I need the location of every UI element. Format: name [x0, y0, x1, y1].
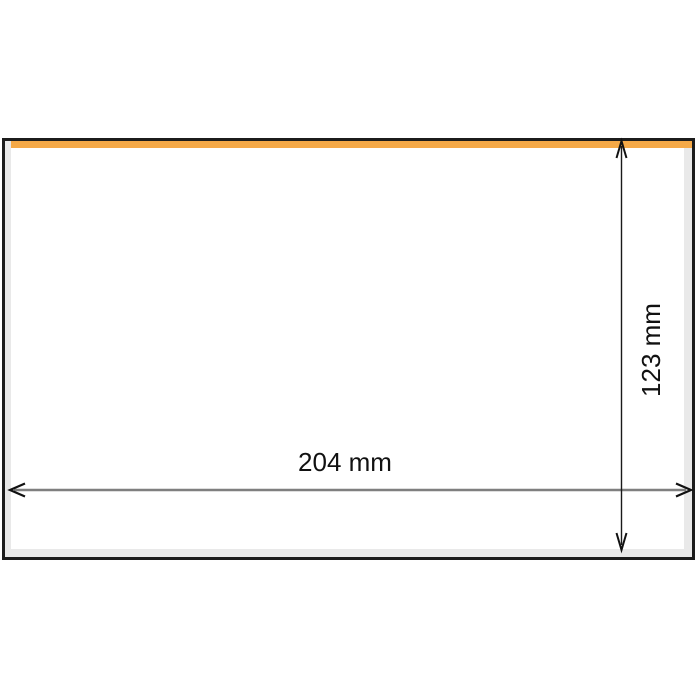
height-dimension-label: 123 mm — [638, 303, 664, 397]
panel-frame — [2, 138, 695, 560]
width-dimension-label: 204 mm — [298, 449, 392, 475]
diagram-canvas: 204 mm 123 mm — [0, 0, 700, 700]
panel-interior — [11, 141, 684, 549]
top-accent-strip — [11, 141, 692, 148]
